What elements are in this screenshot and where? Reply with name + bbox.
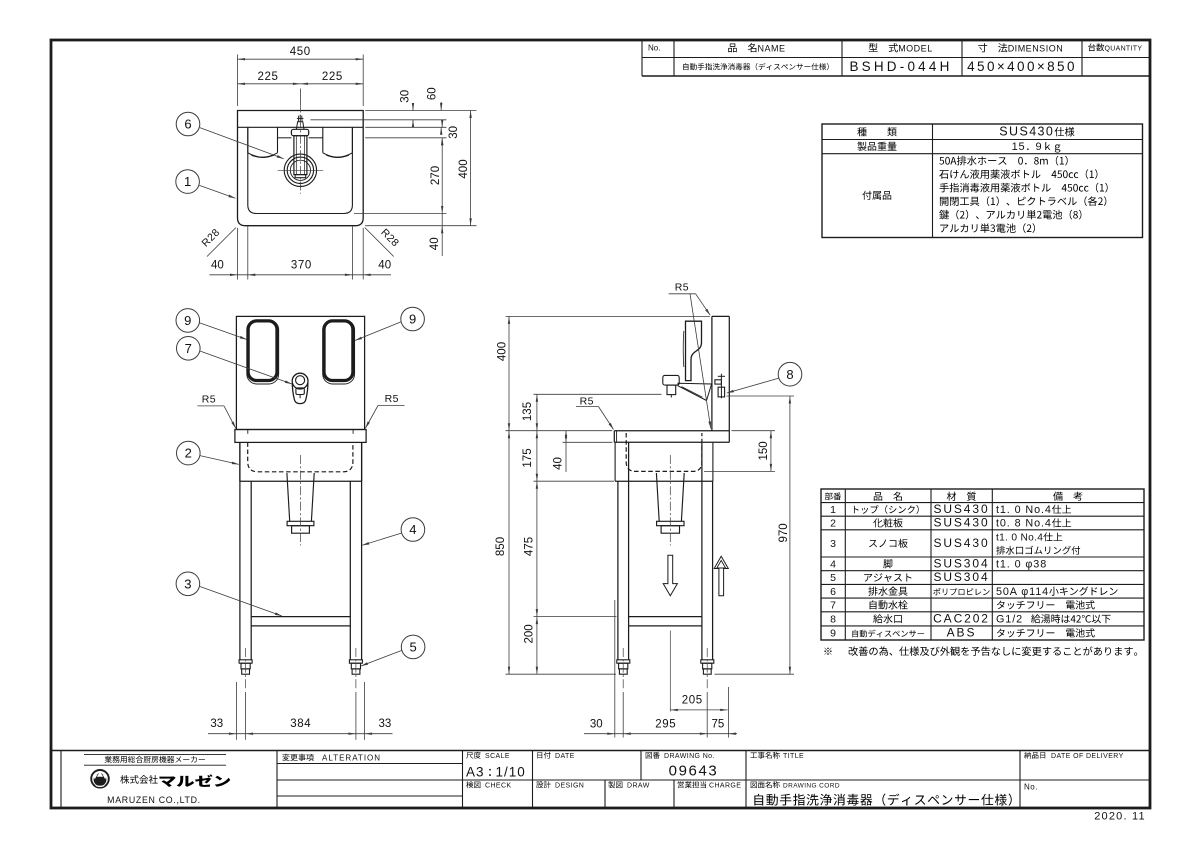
svg-text:DESIGN: DESIGN [555, 783, 584, 790]
svg-text:295: 295 [655, 718, 676, 730]
svg-text:DRAWING No.: DRAWING No. [664, 753, 715, 760]
svg-text:970: 970 [778, 523, 790, 542]
svg-text:t1. 0 φ38: t1. 0 φ38 [996, 559, 1047, 571]
svg-text:MODEL: MODEL [898, 44, 933, 54]
svg-text:DRAWING CORD: DRAWING CORD [783, 783, 840, 790]
svg-text:7: 7 [830, 600, 836, 612]
svg-text:33: 33 [379, 718, 392, 730]
svg-text:DIMENSION: DIMENSION [1008, 44, 1064, 54]
svg-text:135: 135 [522, 402, 534, 421]
svg-text:1: 1 [184, 174, 191, 189]
svg-text:33: 33 [210, 718, 223, 730]
svg-text:A3: A3 [466, 765, 485, 780]
svg-text:R5: R5 [202, 393, 216, 405]
svg-text:4: 4 [409, 522, 416, 537]
svg-text:75: 75 [712, 718, 725, 730]
svg-text:40: 40 [378, 259, 391, 271]
svg-text:400: 400 [458, 159, 470, 178]
svg-text:3: 3 [184, 576, 191, 591]
svg-text:450: 450 [290, 46, 311, 58]
svg-text:205: 205 [682, 694, 703, 706]
svg-text:225: 225 [322, 71, 343, 83]
svg-text:t1. 0 No.4: t1. 0 No.4 [996, 504, 1052, 516]
svg-text:5: 5 [830, 572, 836, 584]
svg-text:R5: R5 [675, 281, 689, 293]
svg-text:4: 4 [830, 559, 836, 571]
svg-text:2020. 11: 2020. 11 [1094, 811, 1146, 823]
svg-text:09643: 09643 [669, 763, 719, 780]
svg-text:DRAW: DRAW [627, 783, 650, 790]
svg-text:8: 8 [830, 614, 836, 626]
svg-text:400: 400 [497, 342, 509, 361]
svg-text:R5: R5 [385, 393, 399, 405]
svg-text:2: 2 [830, 518, 836, 530]
svg-text:G1/2: G1/2 [996, 614, 1023, 626]
svg-text:30: 30 [448, 126, 460, 139]
svg-text:BSHD-044H: BSHD-044H [849, 59, 952, 74]
svg-text:270: 270 [430, 166, 442, 185]
svg-text:150: 150 [758, 441, 770, 460]
svg-text:40: 40 [553, 457, 565, 470]
svg-text:30: 30 [400, 90, 412, 103]
svg-text:SUS430: SUS430 [933, 536, 989, 550]
svg-text:SUS304: SUS304 [933, 557, 989, 571]
svg-text:9: 9 [830, 628, 836, 640]
svg-text:CHARGE: CHARGE [709, 783, 741, 790]
svg-text:225: 225 [258, 71, 279, 83]
svg-text:MARUZEN CO.,LTD.: MARUZEN CO.,LTD. [107, 795, 201, 805]
svg-text:6: 6 [184, 117, 191, 132]
svg-text:t0. 8 No.4: t0. 8 No.4 [996, 518, 1052, 530]
svg-text:QUANTITY: QUANTITY [1105, 46, 1143, 53]
svg-text:No.: No. [1024, 783, 1038, 792]
svg-text:40: 40 [429, 237, 441, 250]
svg-text:40: 40 [211, 259, 224, 271]
svg-text:SUS430: SUS430 [999, 125, 1054, 139]
svg-text:TITLE: TITLE [783, 753, 804, 760]
svg-text:60: 60 [427, 87, 439, 100]
svg-text:8: 8 [786, 367, 793, 382]
svg-text:15: 15 [1012, 141, 1026, 153]
svg-text:DATE: DATE [555, 753, 575, 760]
svg-text:No.: No. [648, 44, 660, 53]
svg-text:475: 475 [523, 537, 535, 556]
svg-text:CAC202: CAC202 [933, 612, 990, 626]
svg-text:9: 9 [184, 313, 191, 328]
svg-text:SCALE: SCALE [485, 753, 510, 760]
svg-text:NAME: NAME [758, 44, 786, 54]
svg-text:R5: R5 [580, 396, 594, 408]
svg-text:5: 5 [409, 640, 416, 655]
svg-text:1: 1 [830, 504, 836, 516]
svg-text:370: 370 [291, 259, 312, 271]
svg-text:t1. 0 No.4: t1. 0 No.4 [996, 533, 1043, 544]
svg-text:CHECK: CHECK [485, 783, 512, 790]
svg-text:SUS304: SUS304 [933, 570, 989, 584]
svg-text:SUS430: SUS430 [933, 502, 989, 516]
svg-text:9: 9 [409, 312, 416, 327]
svg-text:384: 384 [290, 718, 311, 730]
svg-text:ALTERATION: ALTERATION [322, 753, 381, 762]
svg-text:9: 9 [1036, 141, 1043, 153]
svg-text:3: 3 [830, 538, 836, 550]
svg-text:7: 7 [185, 341, 192, 356]
svg-text:450×400×850: 450×400×850 [967, 59, 1077, 74]
svg-text:30: 30 [590, 718, 603, 730]
svg-text:50A φ114: 50A φ114 [996, 586, 1049, 598]
svg-text:200: 200 [523, 624, 535, 643]
svg-text:6: 6 [830, 586, 836, 598]
svg-text:850: 850 [495, 537, 507, 556]
svg-text:SUS430: SUS430 [933, 516, 989, 530]
svg-text:175: 175 [522, 448, 534, 467]
svg-text:ABS: ABS [947, 626, 977, 640]
svg-text:1/10: 1/10 [496, 765, 526, 780]
svg-text:DATE OF DELIVERY: DATE OF DELIVERY [1051, 753, 1124, 760]
svg-text:2: 2 [185, 446, 192, 461]
